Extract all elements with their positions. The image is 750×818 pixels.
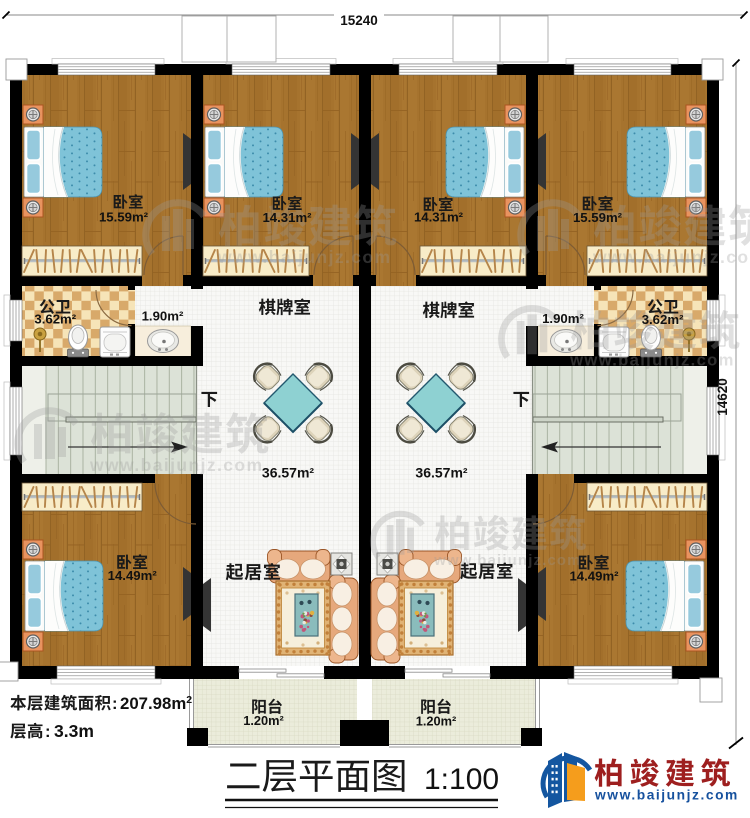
svg-text:14620: 14620 [715,378,730,416]
svg-text:14.49m²: 14.49m² [108,568,158,583]
svg-text:1.90m²: 1.90m² [542,311,584,326]
svg-text:3.62m²: 3.62m² [642,312,684,327]
svg-text:3.62m²: 3.62m² [34,312,76,327]
svg-text:36.57m²: 36.57m² [262,465,314,481]
svg-text:15.59m²: 15.59m² [573,210,623,225]
svg-text:207.98m2: 207.98m2 [120,694,192,713]
svg-text:www.baijunjz.com: www.baijunjz.com [594,788,739,803]
svg-text:15240: 15240 [340,13,378,28]
svg-text:36.57m²: 36.57m² [415,465,467,481]
svg-text:1.20m²: 1.20m² [243,713,284,728]
svg-text:14.49m²: 14.49m² [569,569,619,584]
svg-text:1.20m²: 1.20m² [416,714,457,729]
svg-text::: : [112,694,118,713]
svg-text:15.59m²: 15.59m² [99,210,149,225]
svg-text:14.31m²: 14.31m² [414,209,464,224]
svg-text:3.3m: 3.3m [54,721,94,741]
svg-text::: : [45,722,51,741]
svg-text:14.31m²: 14.31m² [262,210,312,225]
svg-text:1:100: 1:100 [424,763,499,796]
svg-text:1.90m²: 1.90m² [142,309,184,324]
